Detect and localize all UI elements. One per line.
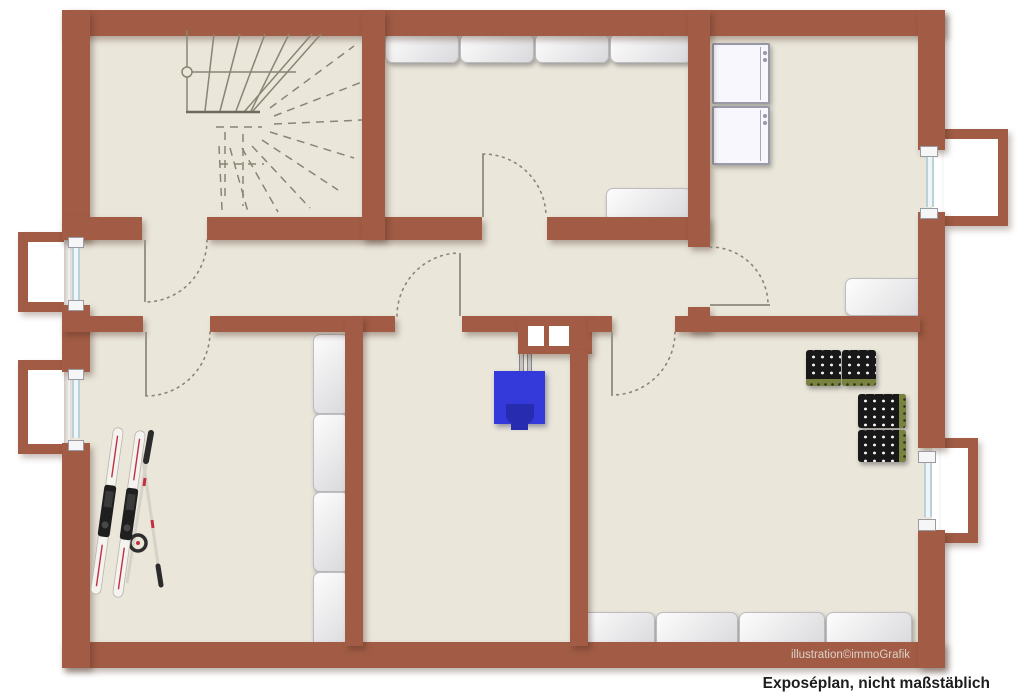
boiler-detail [506,404,534,424]
floor-area [70,16,932,660]
window-sill [68,440,84,451]
crate-edge [899,394,906,428]
shelf-unit [460,33,534,63]
crate-edge [842,379,876,386]
window-glazing [72,378,80,438]
wall-interior [210,316,395,332]
wall-interior [345,316,363,646]
wall-interior [688,10,710,247]
window-sill [920,146,938,157]
window-sill [68,300,84,311]
light-well-right-upper [944,129,1008,226]
chimney-flue [549,326,569,346]
watermark-text: illustration©immoGrafik [791,649,910,661]
beverage-crate-icon [842,350,876,386]
wall-interior [570,350,588,646]
window-sill [68,369,84,380]
light-well-left-upper [18,232,64,312]
light-well-left-lower [18,360,64,454]
shelf-unit [313,414,349,492]
washing-machine-icon [712,43,770,104]
wall-outer-right [918,10,945,150]
boiler-detail [511,424,528,430]
shelf-unit [313,334,349,414]
beverage-crate-icon [858,394,906,428]
window-sill [918,519,936,531]
appliance-knob [763,114,767,118]
wall-interior [547,217,710,240]
dryer-icon [712,106,770,165]
chimney-flue [528,326,544,346]
wall-outer-right [918,530,945,668]
boiler-pipe [527,352,532,373]
boiler-pipe [519,352,524,373]
window-glazing [924,462,932,517]
wall-interior [588,316,612,332]
crate-edge [806,379,841,386]
window-glazing [926,155,934,207]
wall-outer-left [62,443,90,668]
wall-interior [675,316,920,332]
window-sill [918,451,936,463]
appliance-knob [763,121,767,125]
beverage-crate-icon [858,430,906,462]
window-glazing [72,244,80,302]
boiler-icon [494,371,545,424]
wall-interior [62,316,143,332]
shelf-unit [535,33,609,63]
wall-interior [462,316,520,332]
appliance-knob [763,51,767,55]
disclaimer-text: Exposéplan, nicht maßstäblich [763,675,990,693]
appliance-knob [763,58,767,62]
window-sill [920,208,938,219]
light-well-right-lower [941,438,978,543]
window-sill [68,237,84,248]
wall-interior [362,10,385,240]
crate-edge [899,430,906,462]
wall-outer-top [62,10,945,36]
shelf-unit [313,492,349,572]
shelf-unit [385,33,459,63]
wall-outer-right [918,212,945,448]
shelf-unit [610,33,692,63]
beverage-crate-icon [806,350,841,386]
wall-outer-left [62,10,90,240]
floor-plan: illustration©immoGrafik Exposéplan, nich… [0,0,1024,700]
wall-interior [207,217,482,240]
